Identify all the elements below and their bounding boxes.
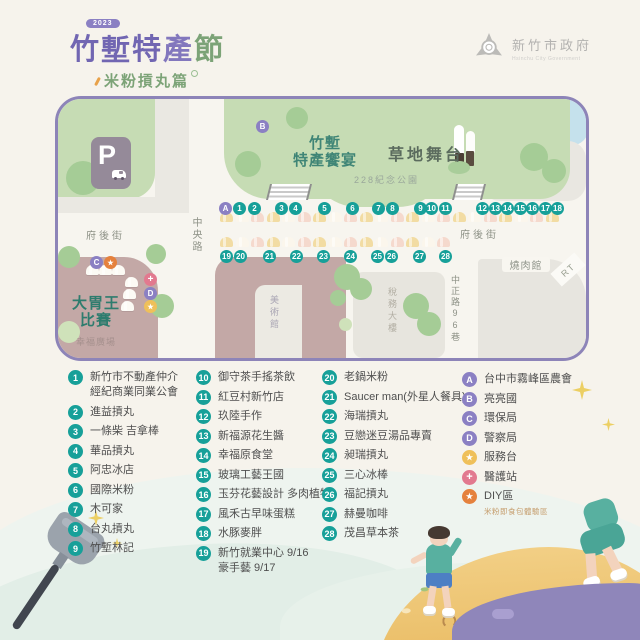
booth-label: 玖陸手作 bbox=[218, 409, 262, 424]
booth-number-badge: 10 bbox=[196, 370, 211, 385]
booth-label: 海瑞摃丸 bbox=[344, 409, 388, 424]
booth-tent-icon bbox=[282, 237, 295, 247]
tree-icon bbox=[146, 244, 166, 264]
tree-icon bbox=[350, 278, 372, 300]
noodle-hill-illustration bbox=[369, 540, 640, 640]
bbq-hall-label: 燒肉館 bbox=[502, 257, 550, 272]
grass-stage-label: 草地舞台 bbox=[388, 141, 464, 165]
car-icon bbox=[112, 170, 126, 178]
legend-item: 12 玖陸手作 bbox=[196, 409, 328, 424]
booth-label: 新竹市不動產仲介經紀商業同業公會 bbox=[90, 370, 178, 400]
booth-label: 水豚麥胖 bbox=[218, 526, 262, 541]
booth-tent-icon bbox=[298, 237, 311, 247]
booth-number-badge: 11 bbox=[196, 390, 211, 405]
legend-item: 1 新竹市不動產仲介經紀商業同業公會 bbox=[68, 370, 198, 400]
legend-column-3: 20 老鍋米粉 21 Saucer man(外星人餐具) 22 海瑞摃丸 23 … bbox=[322, 370, 464, 546]
park-228-label: 228紀念公園 bbox=[354, 173, 419, 186]
map-booth-marker: 21 bbox=[263, 250, 276, 263]
legend-item: 11 紅豆村新竹店 bbox=[196, 390, 328, 405]
legend-item: 20 老鍋米粉 bbox=[322, 370, 464, 385]
map-booth-marker: 18 bbox=[551, 202, 564, 215]
booth-number-badge: 26 bbox=[322, 487, 337, 502]
facility-label: DIY區米粉即食包體驗區 bbox=[484, 489, 548, 519]
legend-column-2: 10 御守茶手搖茶飲 11 紅豆村新竹店 12 玖陸手作 13 新福源花生醬 1… bbox=[196, 370, 328, 580]
map-booth-marker: 19 bbox=[220, 250, 233, 263]
legend-facility-item: B 亮亮國 bbox=[462, 392, 592, 407]
booth-number-badge: 28 bbox=[322, 526, 337, 541]
map-booth-marker: 22 bbox=[290, 250, 303, 263]
sidewalk bbox=[58, 197, 189, 213]
booth-tent-icon bbox=[375, 237, 388, 247]
booth-label: 三心冰棒 bbox=[344, 468, 388, 483]
tree-icon bbox=[339, 318, 352, 331]
booth-label: 豆戀迷豆湯品專賣 bbox=[344, 429, 432, 444]
title-char: 竹 bbox=[70, 26, 101, 68]
facility-badge: B bbox=[462, 392, 477, 407]
facility-badge: ★ bbox=[462, 489, 477, 504]
parking-label: P bbox=[98, 140, 116, 171]
ring-icon bbox=[191, 70, 198, 77]
street-label-zhongyang: 中央路 bbox=[188, 217, 203, 253]
street-label-fuhou-right: 府後街 bbox=[460, 226, 499, 241]
map-booth-marker: 2 bbox=[248, 202, 261, 215]
legend-column-facilities: A 台中市霧峰區農會 B 亮亮國 C 環保局 D 警察局 ★ 服務台 bbox=[462, 372, 592, 524]
legend-item: 18 水豚麥胖 bbox=[196, 526, 328, 541]
legend-facility-item: + 醫護站 bbox=[462, 470, 592, 485]
spatula-handle bbox=[11, 563, 60, 630]
map-booth-marker: 14 bbox=[501, 202, 514, 215]
gov-name: 新竹市政府 bbox=[512, 35, 592, 54]
booth-label: 一條柴 吉拿棒 bbox=[90, 424, 159, 439]
booth-tent-icon bbox=[121, 301, 134, 311]
booth-tent-icon bbox=[313, 237, 326, 247]
venue-map: P 竹塹 特產饗宴 草地舞台 228紀念公園 府後街 府後街 中央路 中正路96… bbox=[55, 96, 589, 361]
page-subtitle: 米粉摃丸篇 bbox=[96, 70, 198, 91]
booth-number-badge: 5 bbox=[68, 463, 83, 478]
title-char: 特 bbox=[132, 26, 163, 68]
booth-tent-icon bbox=[437, 237, 450, 247]
facility-label: 亮亮國 bbox=[484, 392, 517, 407]
map-booth-marker: 28 bbox=[439, 250, 452, 263]
booth-tent-icon bbox=[422, 237, 435, 247]
booth-label: 老鍋米粉 bbox=[344, 370, 388, 385]
legend-facility-item: A 台中市霧峰區農會 bbox=[462, 372, 592, 387]
facility-label: 環保局 bbox=[484, 411, 517, 426]
legend-column-1: 1 新竹市不動產仲介經紀商業同業公會 2 進益摃丸 3 一條柴 吉拿棒 4 華品… bbox=[68, 370, 198, 561]
booth-label: 御守茶手搖茶飲 bbox=[218, 370, 295, 385]
booth-label: 幸福原食堂 bbox=[218, 448, 273, 463]
legend-item: 16 玉芬花藝設計 多肉植物 bbox=[196, 487, 328, 502]
booth-label: 木可家 bbox=[90, 502, 123, 517]
legend-item: 21 Saucer man(外星人餐具) bbox=[322, 390, 464, 405]
booth-number-badge: 27 bbox=[322, 507, 337, 522]
facility-badge: + bbox=[462, 470, 477, 485]
map-facility-marker: C bbox=[90, 256, 103, 269]
booth-number-badge: 15 bbox=[196, 468, 211, 483]
booth-number-badge: 22 bbox=[322, 409, 337, 424]
legend-item: 5 阿忠冰店 bbox=[68, 463, 198, 478]
booth-tent-icon bbox=[251, 237, 264, 247]
legend-item: 10 御守茶手搖茶飲 bbox=[196, 370, 328, 385]
booth-number-badge: 25 bbox=[322, 468, 337, 483]
mint-hill-shape bbox=[280, 562, 640, 640]
legend-item: 4 華品摃丸 bbox=[68, 444, 198, 459]
map-booth-marker: A bbox=[219, 202, 232, 215]
legend-item: 28 茂昌草本茶 bbox=[322, 526, 464, 541]
map-booth-marker: 10 bbox=[425, 202, 438, 215]
title-char: 塹 bbox=[101, 27, 132, 69]
booth-label: Saucer man(外星人餐具) bbox=[344, 390, 466, 405]
booth-tent-icon bbox=[406, 237, 419, 247]
booth-tent-icon bbox=[267, 237, 280, 247]
map-facility-marker: ★ bbox=[144, 300, 157, 313]
booth-tent-icon bbox=[123, 289, 136, 299]
legend-item: 17 風禾古早味蛋糕 bbox=[196, 507, 328, 522]
sparkle-icon bbox=[602, 418, 615, 431]
booth-label: 赫曼咖啡 bbox=[344, 507, 388, 522]
map-booth-marker: 4 bbox=[289, 202, 302, 215]
legend-item: 7 木可家 bbox=[68, 502, 198, 517]
booth-number-badge: 8 bbox=[68, 522, 83, 537]
map-booth-marker: 12 bbox=[476, 202, 489, 215]
booth-label: 阿忠冰店 bbox=[90, 463, 134, 478]
booth-number-badge: 20 bbox=[322, 370, 337, 385]
page-title: 竹塹特產節 bbox=[70, 26, 225, 68]
legend-item: 6 國際米粉 bbox=[68, 483, 198, 498]
booth-number-badge: 6 bbox=[68, 483, 83, 498]
street-label-zhongzheng-lane: 中正路96巷 bbox=[449, 275, 462, 343]
happiness-square-label: 幸福廣場 bbox=[64, 335, 128, 348]
map-booth-marker: 7 bbox=[372, 202, 385, 215]
legend-item: 13 新福源花生醬 bbox=[196, 429, 328, 444]
booth-tent-icon bbox=[453, 212, 466, 222]
map-booth-marker: 16 bbox=[526, 202, 539, 215]
booth-label: 玉芬花藝設計 多肉植物 bbox=[218, 487, 331, 502]
tree-icon bbox=[542, 159, 566, 183]
map-booth-marker: 3 bbox=[275, 202, 288, 215]
booth-number-badge: 2 bbox=[68, 405, 83, 420]
tick-icon bbox=[94, 77, 101, 86]
booth-tent-icon bbox=[360, 212, 373, 222]
booth-label: 竹塹林記 bbox=[90, 541, 134, 556]
map-facility-marker: B bbox=[256, 120, 269, 133]
booth-tent-icon bbox=[344, 237, 357, 247]
legend-item: 27 赫曼咖啡 bbox=[322, 507, 464, 522]
booth-label: 台丸摃丸 bbox=[90, 522, 134, 537]
facility-badge: A bbox=[462, 372, 477, 387]
booth-number-badge: 13 bbox=[196, 429, 211, 444]
booth-number-badge: 9 bbox=[68, 541, 83, 556]
street-label-fuhou-left: 府後街 bbox=[86, 227, 125, 242]
tree-icon bbox=[417, 312, 441, 336]
booth-label: 華品摃丸 bbox=[90, 444, 134, 459]
booth-label: 茂昌草本茶 bbox=[344, 526, 399, 541]
legend-item: 15 玻璃工藝王國 bbox=[196, 468, 328, 483]
map-booth-marker: 5 bbox=[318, 202, 331, 215]
tree-icon bbox=[286, 107, 308, 129]
facility-label: 台中市霧峰區農會 bbox=[484, 372, 572, 387]
spatula-neck bbox=[52, 552, 68, 569]
map-booth-marker: 6 bbox=[346, 202, 359, 215]
map-booth-marker: 1 bbox=[233, 202, 246, 215]
booth-number-badge: 16 bbox=[196, 487, 211, 502]
booth-tent-icon bbox=[329, 212, 342, 222]
booth-tent-icon bbox=[360, 237, 373, 247]
legend-facility-item: D 警察局 bbox=[462, 431, 592, 446]
booth-number-badge: 12 bbox=[196, 409, 211, 424]
art-museum-label: 美術館 bbox=[268, 295, 281, 331]
gov-logo-block: 新竹市政府 Hsinchu City Government bbox=[474, 32, 592, 64]
map-facility-marker: D bbox=[144, 287, 157, 300]
legend-facility-item: C 環保局 bbox=[462, 411, 592, 426]
booth-number-badge: 14 bbox=[196, 448, 211, 463]
map-booth-marker: 26 bbox=[385, 250, 398, 263]
legend-facility-item: ★ DIY區米粉即食包體驗區 bbox=[462, 489, 592, 519]
booth-label: 昶瑞摃丸 bbox=[344, 448, 388, 463]
legend-item: 22 海瑞摃丸 bbox=[322, 409, 464, 424]
legend-item: 26 福記摃丸 bbox=[322, 487, 464, 502]
booth-number-badge: 4 bbox=[68, 444, 83, 459]
eating-contest-label: 大胃王 比賽 bbox=[64, 295, 128, 329]
tree-icon bbox=[58, 246, 80, 268]
map-booth-marker: 24 bbox=[344, 250, 357, 263]
facility-badge: D bbox=[462, 431, 477, 446]
booth-label: 風禾古早味蛋糕 bbox=[218, 507, 295, 522]
map-facility-marker: + bbox=[144, 273, 157, 286]
map-booth-marker: 20 bbox=[234, 250, 247, 263]
map-booth-marker: 27 bbox=[413, 250, 426, 263]
facility-label: 警察局 bbox=[484, 431, 517, 446]
facility-label: 醫護站 bbox=[484, 470, 517, 485]
tree-icon bbox=[235, 151, 261, 177]
legend-item: 14 幸福原食堂 bbox=[196, 448, 328, 463]
booth-number-badge: 3 bbox=[68, 424, 83, 439]
legend-item: 2 進益摃丸 bbox=[68, 405, 198, 420]
facility-label: 服務台 bbox=[484, 450, 517, 465]
hsinchu-gov-logo-icon bbox=[474, 32, 504, 64]
booth-number-badge: 7 bbox=[68, 502, 83, 517]
legend-item: 8 台丸摃丸 bbox=[68, 522, 198, 537]
feast-area-label: 竹塹 特產饗宴 bbox=[283, 135, 367, 169]
booth-label: 紅豆村新竹店 bbox=[218, 390, 284, 405]
legend-item: 3 一條柴 吉拿棒 bbox=[68, 424, 198, 439]
map-facility-marker: ★ bbox=[104, 256, 117, 269]
title-char: 節 bbox=[194, 26, 225, 68]
crosswalk-icon bbox=[452, 184, 486, 200]
legend-item: 23 豆戀迷豆湯品專賣 bbox=[322, 429, 464, 444]
booth-label: 國際米粉 bbox=[90, 483, 134, 498]
legend-item: 19 新竹就業中心 9/16豪手藝 9/17 bbox=[196, 546, 328, 576]
booth-tent-icon bbox=[220, 237, 233, 247]
booth-label: 新竹就業中心 9/16豪手藝 9/17 bbox=[218, 546, 308, 576]
booth-number-badge: 23 bbox=[322, 429, 337, 444]
tax-building-label: 稅務大樓 bbox=[386, 287, 399, 335]
crosswalk-icon bbox=[266, 184, 312, 200]
booth-number-badge: 24 bbox=[322, 448, 337, 463]
booth-label: 新福源花生醬 bbox=[218, 429, 284, 444]
booth-label: 進益摃丸 bbox=[90, 405, 134, 420]
facility-badge: C bbox=[462, 411, 477, 426]
festival-poster: 2023 竹塹特產節 米粉摃丸篇 新竹市政府 Hsinchu City Gove… bbox=[0, 0, 640, 640]
legend-item: 9 竹塹林記 bbox=[68, 541, 198, 556]
booth-tent-icon bbox=[391, 237, 404, 247]
booth-tent-icon bbox=[236, 237, 249, 247]
sidewalk bbox=[155, 99, 189, 211]
booth-number-badge: 18 bbox=[196, 526, 211, 541]
tree-icon bbox=[330, 290, 346, 306]
booth-number-badge: 17 bbox=[196, 507, 211, 522]
map-booth-marker: 25 bbox=[371, 250, 384, 263]
wave-badge bbox=[492, 609, 514, 619]
booth-tent-icon bbox=[329, 237, 342, 247]
legend-item: 24 昶瑞摃丸 bbox=[322, 448, 464, 463]
title-char: 產 bbox=[163, 26, 194, 68]
facility-badge: ★ bbox=[462, 450, 477, 465]
booth-number-badge: 1 bbox=[68, 370, 83, 385]
parking-sign: P bbox=[91, 137, 131, 189]
map-booth-marker: 11 bbox=[439, 202, 452, 215]
legend-facility-item: ★ 服務台 bbox=[462, 450, 592, 465]
legend-item: 25 三心冰棒 bbox=[322, 468, 464, 483]
booth-label: 福記摃丸 bbox=[344, 487, 388, 502]
gov-name-en: Hsinchu City Government bbox=[512, 56, 592, 62]
map-booth-marker: 8 bbox=[386, 202, 399, 215]
purple-wave-shape bbox=[452, 583, 640, 640]
booth-tent-icon bbox=[125, 277, 138, 287]
booth-number-badge: 21 bbox=[322, 390, 337, 405]
booth-label: 玻璃工藝王國 bbox=[218, 468, 284, 483]
booth-number-badge: 19 bbox=[196, 546, 211, 561]
map-booth-marker: 23 bbox=[317, 250, 330, 263]
